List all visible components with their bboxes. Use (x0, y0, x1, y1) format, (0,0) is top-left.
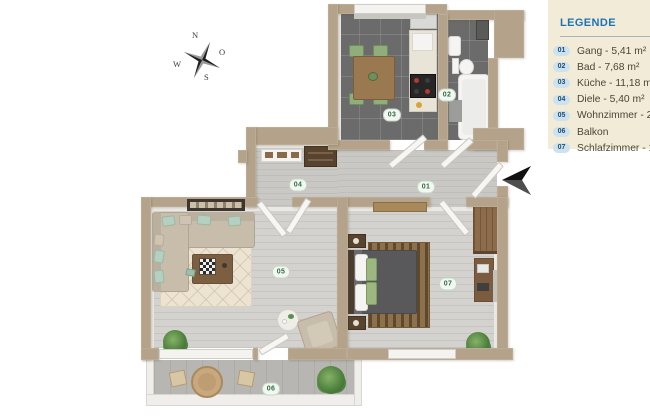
compass-north-label: N (192, 30, 198, 40)
radiator (493, 270, 497, 302)
bedroom-wall-art (373, 202, 427, 212)
wardrobe (473, 205, 498, 254)
hall-sideboard-shelf (308, 159, 333, 161)
balcony-railing-right (354, 358, 362, 406)
bench-item (277, 152, 287, 158)
stove-burner (414, 89, 419, 94)
sofa-pillow (153, 249, 165, 263)
wall-living-bottom-c (288, 348, 347, 360)
bench-item (291, 152, 299, 158)
legend-row: 07 Schlafzimmer - 19 (553, 140, 650, 156)
compass-east-label: O (219, 47, 225, 57)
sofa-pillow (179, 215, 192, 225)
nightstand-lamp (353, 238, 359, 244)
desk-item (477, 283, 489, 291)
entrance-arrow-icon (500, 164, 533, 197)
stove-burner (414, 78, 419, 83)
table-deco (222, 263, 227, 268)
stove-burner (425, 78, 430, 83)
wall-living-left (141, 197, 151, 360)
washbasin (448, 36, 461, 56)
legend-badge: 04 (553, 95, 570, 105)
wall-innerface (338, 14, 341, 140)
compass-rose-icon: N O S W (170, 28, 234, 92)
bath-mat (449, 100, 462, 122)
room-label-wohnzimmer: 05 (272, 266, 290, 279)
room-label-kueche: 03 (383, 109, 401, 122)
compass-west-label: W (173, 59, 181, 69)
bedroom-window (388, 349, 456, 359)
legend-row: 03 Küche - 11,18 m² (553, 75, 650, 91)
legend-row: 04 Diele - 5,40 m² (553, 92, 650, 108)
legend-label: Bad - 7,68 m² (577, 62, 639, 73)
kitchen-window (354, 4, 426, 14)
living-wall-art-pattern (190, 202, 242, 208)
shower (476, 20, 489, 40)
stove-burner (425, 89, 430, 94)
legend-rows: 01 Gang - 5,41 m² 02 Bad - 7,68 m² 03 Kü… (553, 43, 650, 156)
legend-label: Wohnzimmer - 25 (577, 110, 650, 121)
legend-badge: 06 (553, 127, 570, 137)
wall-hall-top-b (424, 140, 448, 150)
kitchen-stool (416, 102, 422, 108)
side-table (277, 309, 299, 331)
room-label-gang: 01 (417, 181, 435, 194)
desk-laptop (477, 264, 489, 273)
legend-label: Schlafzimmer - 19 (577, 143, 650, 154)
legend-label: Gang - 5,41 m² (577, 46, 646, 57)
toilet-tank (452, 58, 459, 74)
wall-living-bottom-b (253, 348, 258, 360)
wall-bedroom-right (497, 197, 508, 358)
wall-entrance-top (497, 140, 508, 162)
wall-kitchen-bath-divider (438, 14, 448, 140)
wall-living-bottom-a (141, 348, 159, 360)
bathtub-inner (462, 79, 486, 135)
wall-bath-right-upper (494, 10, 524, 58)
room-label-balkon: 06 (262, 383, 280, 396)
nightstand-lamp (353, 320, 359, 326)
legend-panel: LEGENDE 01 Gang - 5,41 m² 02 Bad - 7,68 … (548, 0, 650, 149)
hall-sideboard-shelf (308, 152, 333, 154)
side-table-plant (288, 314, 294, 319)
livingroom-window (159, 349, 253, 359)
room-label-bad: 02 (438, 89, 456, 102)
sofa-pillow (153, 270, 164, 284)
legend-badge: 01 (553, 46, 570, 56)
legend-row: 02 Bad - 7,68 m² (553, 59, 650, 75)
sofa-pillow (161, 215, 175, 227)
room-label-diele: 04 (289, 179, 307, 192)
legend-row: 05 Wohnzimmer - 25 (553, 108, 650, 124)
room-label-schlafzimmer: 07 (439, 278, 457, 291)
balcony-table-inner (198, 373, 216, 391)
legend-label: Balkon (577, 127, 608, 138)
toilet-bowl (459, 59, 474, 75)
bench-item (265, 152, 273, 158)
legend-row: 01 Gang - 5,41 m² (553, 43, 650, 59)
wall-bath-right-mid (488, 58, 498, 128)
legend-divider (560, 36, 650, 37)
legend-label: Küche - 11,18 m² (577, 78, 650, 89)
sofa-pillow (153, 234, 164, 247)
wall-diele-step (238, 150, 247, 163)
floorplan-image: N O S W (0, 0, 650, 420)
legend-badge: 07 (553, 143, 570, 153)
plant-balcony (317, 366, 345, 394)
balcony-railing-front (146, 394, 362, 406)
table-plant-deco (368, 72, 378, 81)
legend-row: 06 Balkon (553, 124, 650, 140)
legend-label: Diele - 5,40 m² (577, 94, 645, 105)
wall-diele-top (246, 127, 338, 145)
chessboard (199, 258, 216, 275)
side-table-deco (282, 319, 287, 324)
kitchen-sink (412, 33, 433, 51)
legend-badge: 03 (553, 78, 570, 88)
sofa-pillow (228, 215, 242, 226)
kitchen-window-sill (354, 14, 426, 19)
bed-pillow-green (366, 282, 377, 305)
bed-pillow-green (366, 258, 377, 281)
compass-south-label: S (204, 72, 209, 82)
wall-diele-left (246, 127, 256, 207)
sofa-pillow (197, 214, 212, 225)
legend-badge: 05 (553, 111, 570, 121)
legend-title: LEGENDE (560, 17, 650, 29)
legend-badge: 02 (553, 62, 570, 72)
balcony-chair (237, 370, 255, 388)
wall-living-bedroom-divider (337, 197, 348, 358)
